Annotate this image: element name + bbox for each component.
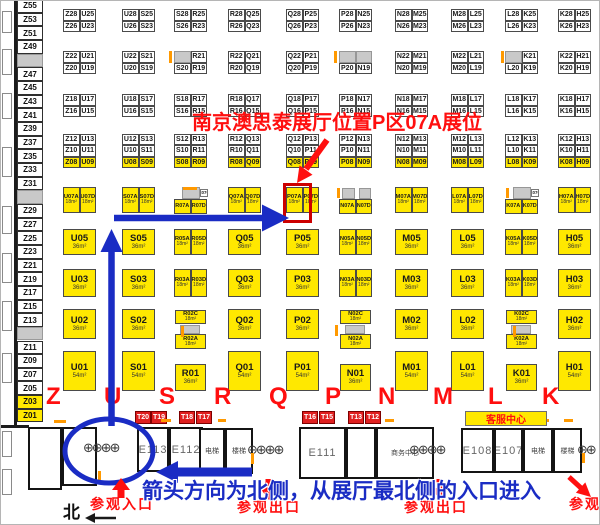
booth-id: S13	[141, 136, 153, 143]
booth-U22: U22	[122, 51, 139, 63]
district-letter-S: S	[159, 385, 183, 409]
booth-space-gray	[345, 325, 365, 334]
booth-U17: U17	[80, 94, 97, 106]
booth-id: S16	[176, 108, 188, 115]
booth-N17: N17	[356, 94, 373, 106]
booth-id: S28	[176, 11, 188, 18]
booth-L08: L08	[505, 157, 522, 168]
orange-mark	[218, 419, 226, 422]
booth-id: Q22	[288, 53, 301, 60]
booth-id: U01	[71, 363, 88, 373]
booth-L16: L16	[505, 106, 522, 118]
booth-id: R01	[182, 369, 199, 379]
booth-Z21: Z21	[17, 259, 43, 273]
orange-mark	[337, 188, 340, 198]
booth-id: L19	[470, 65, 482, 72]
booth-id: H17	[576, 96, 589, 103]
booth-S25: S25	[139, 9, 156, 21]
booth-Q23: Q23	[245, 21, 262, 33]
booth-area: 18m²	[516, 342, 527, 347]
booth-id: Q10	[288, 147, 301, 154]
booth-id: Q23	[246, 23, 259, 30]
booth-id: S01	[130, 363, 147, 373]
booth-M19: M19	[412, 63, 429, 75]
booth-id: N18	[397, 96, 410, 103]
booth-id: L28	[507, 11, 519, 18]
booth-H07D: H07D18m²	[575, 187, 592, 213]
booth-Z25: Z25	[17, 231, 43, 245]
booth-Z19: Z19	[17, 272, 43, 286]
booth-Z47: Z47	[17, 67, 43, 81]
booth-Z31: Z31	[17, 177, 43, 191]
booth-T20: T20	[135, 411, 151, 424]
booth-Q12: Q12	[286, 134, 303, 145]
booth-id: K07D	[523, 204, 537, 210]
wall-tick	[2, 11, 12, 33]
booth-area: 36m²	[405, 244, 419, 250]
booth-id: P19	[305, 65, 317, 72]
orange-mark	[334, 51, 337, 63]
booth-id: L17	[470, 96, 482, 103]
booth-id: P02	[294, 316, 311, 326]
booth-R12: R12	[228, 134, 245, 145]
orange-mark	[181, 326, 184, 337]
booth-id: M03	[402, 275, 420, 285]
booth-id: M09	[413, 159, 427, 166]
booth-S13: S13	[139, 134, 156, 145]
booth-R05D: R05D18m²	[191, 229, 208, 255]
booth-R19: R19	[191, 63, 208, 75]
booth-H23: H23	[575, 21, 592, 33]
booth-id: H02	[566, 316, 583, 326]
booth-id: P12	[341, 136, 353, 143]
booth-area: 54m²	[405, 373, 419, 379]
booth-id: L03	[459, 275, 475, 285]
booth-id: S17	[141, 96, 153, 103]
booth-N07D: N07D	[356, 199, 373, 214]
booth-Q13: Q13	[245, 134, 262, 145]
room-E112: E112	[169, 427, 203, 472]
booth-L09: L09	[468, 157, 485, 168]
booth-id: H21	[576, 53, 589, 60]
booth-L03: L0336m²	[451, 269, 484, 297]
booth-Z39: Z39	[17, 122, 43, 136]
booth-Q09: Q09	[245, 157, 262, 168]
booth-N19: N19	[356, 63, 373, 75]
booth-M12: M12	[451, 134, 468, 145]
booth-id: U02	[71, 316, 88, 326]
booth-P17: P17	[303, 94, 320, 106]
booth-id: R21	[192, 53, 205, 60]
booth-id: Q25	[246, 11, 259, 18]
booth-area: 18m²	[470, 200, 481, 205]
booth-Q26: Q26	[286, 21, 303, 33]
booth-area: 36m²	[238, 244, 252, 250]
orange-mark	[513, 326, 516, 337]
booth-id: P13	[305, 136, 317, 143]
booth-id: S25	[141, 11, 153, 18]
booth-id: R22	[230, 53, 243, 60]
booth-P09: P09	[303, 157, 320, 168]
booth-id: N08	[397, 159, 410, 166]
booth-id: R19	[192, 65, 205, 72]
booth-K12: K12	[558, 134, 575, 145]
booth-U10: U10	[122, 145, 139, 156]
booth-id: K07A	[506, 204, 520, 210]
booth-id: K17	[523, 96, 536, 103]
wall-tick	[2, 469, 12, 495]
booth-id: P08	[341, 159, 353, 166]
booth-U28: U28	[122, 9, 139, 21]
booth-area: 18m²	[177, 242, 188, 247]
booth-id: N07A	[340, 204, 354, 210]
booth-N11: N11	[356, 145, 373, 156]
booth-L07A: L07A18m²	[451, 187, 468, 213]
booth-id: M08	[452, 159, 466, 166]
booth-R03D: R03D18m²	[191, 269, 208, 297]
booth-K08: K08	[558, 157, 575, 168]
booth-R18: R18	[228, 94, 245, 106]
booth-id: L05	[459, 234, 475, 244]
booth-id: L20	[507, 65, 519, 72]
booth-id: U23	[81, 23, 94, 30]
booth-R17: R17	[191, 94, 208, 106]
booth-K22: K22	[558, 51, 575, 63]
booth-area: 18m²	[231, 200, 242, 205]
booth-Z41: Z41	[17, 108, 43, 122]
booth-area: 36m²	[405, 285, 419, 291]
booth-id: P11	[305, 147, 317, 154]
booth-Z05: Z05	[17, 381, 43, 395]
booth-area: 36m²	[568, 285, 582, 291]
booth-id: Q02	[236, 316, 254, 326]
booth-S26: S26	[174, 21, 191, 33]
booth-Z27: Z27	[17, 218, 43, 232]
booth-R10: R10	[228, 145, 245, 156]
orange-mark	[335, 325, 338, 336]
booth-H15: H15	[575, 106, 592, 118]
orange-mark	[582, 453, 585, 463]
booth-Z45: Z45	[17, 81, 43, 95]
booth-area: 18m²	[185, 317, 196, 322]
turnstile-icon: ⊕⊕	[577, 443, 600, 457]
booth-Z15: Z15	[17, 300, 43, 314]
booth-id: M19	[413, 65, 427, 72]
booth-id: S15	[141, 108, 153, 115]
booth-id: R23	[192, 23, 205, 30]
booth-K17: K17	[522, 94, 539, 106]
booth-id: Z26	[65, 23, 77, 30]
booth-H21: H21	[575, 51, 592, 63]
booth-space-gray	[17, 54, 43, 68]
orange-mark	[501, 51, 504, 63]
district-letter-N: N	[378, 385, 402, 409]
booth-id: P25	[305, 11, 317, 18]
booth-id: U13	[81, 136, 94, 143]
wall-tick	[2, 206, 12, 234]
booth-Q11: Q11	[245, 145, 262, 156]
booth-area: 54m²	[461, 373, 475, 379]
booth-S07D: S07D18m²	[139, 187, 156, 213]
orange-mark	[506, 188, 509, 198]
booth-N25: N25	[356, 9, 373, 21]
booth-R28: R28	[228, 9, 245, 21]
booth-K07D: K07D	[522, 199, 539, 214]
booth-R02C: R02C18m²	[175, 310, 206, 324]
booth-M21: M21	[412, 51, 429, 63]
booth-id: N01	[347, 369, 364, 379]
booth-id: L21	[470, 53, 482, 60]
booth-S28: S28	[174, 9, 191, 21]
booth-id: M01	[402, 363, 420, 373]
booth-area: 36m²	[405, 326, 419, 332]
booth-id: H15	[576, 108, 589, 115]
booth-area: 36m²	[296, 244, 310, 250]
orange-mark	[564, 419, 573, 422]
booth-area: 36m²	[296, 326, 310, 332]
booth-id: U10	[124, 147, 137, 154]
booth-area: 18m²	[414, 200, 425, 205]
booth-P26: P26	[339, 21, 356, 33]
booth-U11: U11	[80, 145, 97, 156]
booth-space-gray	[505, 51, 522, 63]
booth-id: U28	[124, 11, 137, 18]
booth-N02C: N02C18m²	[340, 310, 371, 324]
booth-id: U03	[71, 275, 88, 285]
booth-Q17: Q17	[245, 94, 262, 106]
booth-H05: H0536m²	[558, 229, 591, 255]
booth-id: P28	[341, 11, 353, 18]
booth-K03D: K03D18m²	[522, 269, 539, 297]
booth-id: N07D	[357, 204, 371, 210]
booth-S16: S16	[174, 106, 191, 118]
booth-id: L26	[507, 23, 519, 30]
room-电梯: 电梯	[523, 428, 553, 473]
booth-Z35: Z35	[17, 149, 43, 163]
booth-area: 36m²	[568, 244, 582, 250]
booth-area: 36m²	[461, 326, 475, 332]
booth-area: 18m²	[141, 200, 152, 205]
orange-mark	[54, 420, 66, 423]
booth-id: U12	[124, 136, 137, 143]
booth-id: L13	[470, 136, 482, 143]
booth-N03D: N03D18m²	[356, 269, 373, 297]
booth-H11: H11	[575, 145, 592, 156]
booth-id: M26	[452, 23, 466, 30]
booth-Z37: Z37	[17, 136, 43, 150]
booth-area: 18m²	[82, 200, 93, 205]
booth-P11: P11	[303, 145, 320, 156]
orange-mark	[385, 419, 394, 422]
booth-id: H13	[576, 136, 589, 143]
booth-id: M12	[452, 136, 466, 143]
booth-id: K16	[560, 108, 573, 115]
booth-id: N26	[397, 23, 410, 30]
booth-id: N09	[357, 159, 370, 166]
booth-K05D: K05D18m²	[522, 229, 539, 255]
booth-Z20: Z20	[63, 63, 80, 75]
wall-tick	[2, 353, 12, 383]
booth-area: 18m²	[66, 200, 77, 205]
booth-S23: S23	[139, 21, 156, 33]
booth-R09: R09	[191, 157, 208, 168]
booth-U05: U0536m²	[63, 229, 96, 255]
booth-N05D: N05D18m²	[356, 229, 373, 255]
booth-S15: S15	[139, 106, 156, 118]
booth-K28: K28	[558, 9, 575, 21]
booth-T15: T15	[319, 411, 335, 424]
booth-space-gray	[342, 188, 355, 199]
booth-id: S05	[130, 234, 147, 244]
booth-Z22: Z22	[63, 51, 80, 63]
booth-id: P21	[305, 53, 317, 60]
booth-id: Q17	[246, 96, 259, 103]
booth-id: U25	[81, 11, 94, 18]
booth-id: N20	[397, 65, 410, 72]
exhibition-floor-plan: Z55Z53Z51Z49Z47Z45Z43Z41Z39Z37Z35Z33Z31Z…	[0, 0, 600, 525]
booth-T13: T13	[348, 411, 364, 424]
booth-area: 18m²	[398, 200, 409, 205]
booth-id: K13	[523, 136, 536, 143]
booth-id: S26	[176, 23, 188, 30]
booth-id: M02	[402, 316, 420, 326]
booth-id: M28	[452, 11, 466, 18]
booth-id: P03	[294, 275, 311, 285]
highlight-box	[283, 183, 313, 223]
booth-id: S08	[176, 159, 188, 166]
booth-id: Z22	[65, 53, 77, 60]
booth-Z28: Z28	[63, 9, 80, 21]
wall-tick	[2, 93, 12, 119]
booth-U02: U0236m²	[63, 309, 96, 339]
booth-P02: P0236m²	[286, 309, 319, 339]
booth-Q25: Q25	[245, 9, 262, 21]
booth-K07A: K07A	[505, 199, 522, 214]
booth-id: U09	[81, 159, 94, 166]
booth-area: 54m²	[568, 373, 582, 379]
turnstile-icon: ⊕⊕⊕⊕	[409, 443, 461, 457]
booth-H02: H0236m²	[558, 309, 591, 339]
booth-L11: L11	[468, 145, 485, 156]
booth-id: N17	[357, 96, 370, 103]
booth-id: R08	[230, 159, 243, 166]
district-letter-L: L	[488, 385, 512, 409]
booth-N23: N23	[356, 21, 373, 33]
booth-K07C: K07C	[531, 189, 539, 197]
booth-L10: L10	[505, 145, 522, 156]
booth-area: 36m²	[461, 244, 475, 250]
booth-L13: L13	[468, 134, 485, 145]
booth-space-gray	[17, 190, 43, 204]
booth-U23: U23	[80, 21, 97, 33]
booth-H17: H17	[575, 94, 592, 106]
booth-id: P18	[341, 96, 353, 103]
booth-area: 18m²	[508, 283, 519, 288]
booth-id: S21	[141, 53, 153, 60]
booth-id: M11	[413, 147, 426, 154]
booth-N12: N12	[395, 134, 412, 145]
room-E108: E108	[461, 428, 494, 473]
booth-space-gray	[339, 51, 356, 63]
booth-P08: P08	[339, 157, 356, 168]
booth-P18: P18	[339, 94, 356, 106]
wall-tick	[2, 431, 12, 457]
booth-id: P05	[294, 234, 311, 244]
booth-Q07A: Q07A18m²	[228, 187, 245, 213]
booth-id: L08	[507, 159, 519, 166]
booth-id: P23	[305, 23, 317, 30]
booth-S11: S11	[139, 145, 156, 156]
booth-Q21: Q21	[245, 51, 262, 63]
booth-Z11: Z11	[17, 341, 43, 355]
booth-id: S19	[141, 65, 153, 72]
booth-R20: R20	[228, 63, 245, 75]
booth-K11: K11	[522, 145, 539, 156]
booth-area: 36m²	[568, 326, 582, 332]
booth-id: R28	[230, 11, 243, 18]
booth-id: Z18	[65, 96, 77, 103]
booth-T16: T16	[302, 411, 318, 424]
booth-P23: P23	[303, 21, 320, 33]
booth-K02C: K02C18m²	[506, 310, 537, 324]
booth-H09: H09	[575, 157, 592, 168]
booth-P21: P21	[303, 51, 320, 63]
booth-id: R18	[230, 96, 243, 103]
booth-P25: P25	[303, 9, 320, 21]
district-letter-M: M	[433, 385, 457, 409]
booth-R13: R13	[191, 134, 208, 145]
booth-Z07: Z07	[17, 368, 43, 382]
booth-Z09: Z09	[17, 354, 43, 368]
booth-P20: P20	[339, 63, 356, 75]
booth-id: R09	[192, 159, 205, 166]
booth-area: 54m²	[238, 373, 252, 379]
booth-Z13: Z13	[17, 313, 43, 327]
booth-U15: U15	[80, 106, 97, 118]
booth-Z16: Z16	[63, 106, 80, 118]
booth-R22: R22	[228, 51, 245, 63]
booth-area: 18m²	[516, 317, 527, 322]
booth-space-gray	[356, 51, 373, 63]
wall-segment	[1, 425, 29, 428]
visitor-exit-label-corner: 参观出口	[569, 497, 600, 511]
booth-K21: K21	[522, 51, 539, 63]
booth-K05A: K05A18m²	[505, 229, 522, 255]
booth-M28: M28	[451, 9, 468, 21]
booth-P19: P19	[303, 63, 320, 75]
direction-annotation-text: 箭头方向为北侧，从展厅最北侧的入口进入	[142, 481, 541, 502]
booth-id: Q26	[288, 23, 301, 30]
booth-id: U15	[81, 108, 94, 115]
booth-id: U21	[81, 53, 94, 60]
booth-U07A: U07A18m²	[63, 187, 80, 213]
booth-id: M22	[452, 53, 466, 60]
booth-N18: N18	[395, 94, 412, 106]
booth-id: P09	[305, 159, 317, 166]
booth-area: 36m²	[73, 285, 87, 291]
booth-area: 54m²	[296, 373, 310, 379]
booth-L05: L0536m²	[451, 229, 484, 255]
booth-id: H09	[576, 159, 589, 166]
booth-space-gray	[513, 187, 531, 199]
booth-M11: M11	[412, 145, 429, 156]
booth-Z03: Z03	[17, 395, 43, 409]
booth-M26: M26	[451, 21, 468, 33]
booth-N22: N22	[395, 51, 412, 63]
booth-id: M23	[413, 23, 427, 30]
booth-K03A: K03A18m²	[505, 269, 522, 297]
booth-id: S09	[141, 159, 153, 166]
